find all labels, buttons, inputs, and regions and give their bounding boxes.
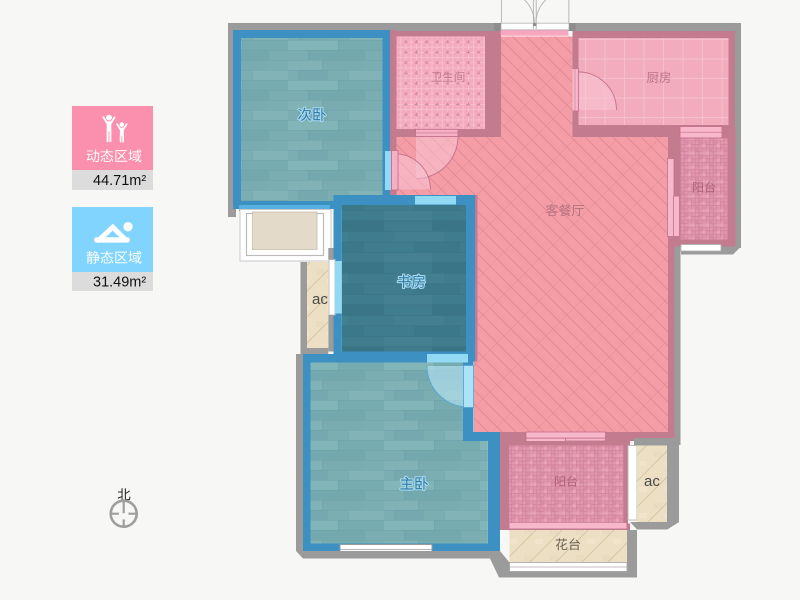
svg-text:ac: ac [644, 473, 660, 490]
svg-text:31.49m²: 31.49m² [93, 275, 146, 291]
svg-text:ac: ac [312, 291, 328, 308]
svg-text:44.71m²: 44.71m² [93, 173, 146, 189]
